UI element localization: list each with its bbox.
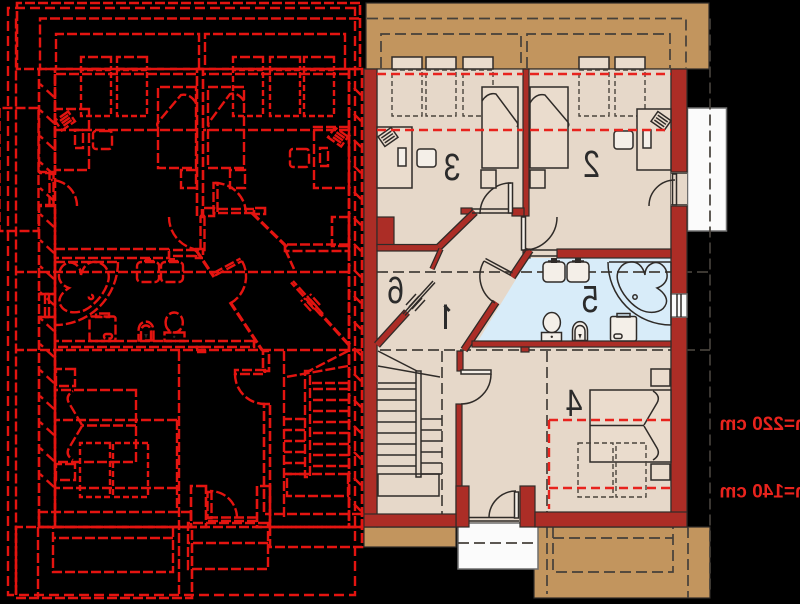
svg-text:2: 2: [583, 144, 600, 186]
svg-text:h=140 cm: h=140 cm: [719, 482, 800, 503]
svg-text:h=220 cm: h=220 cm: [719, 414, 800, 435]
svg-text:3: 3: [444, 147, 461, 189]
svg-text:5: 5: [582, 279, 599, 321]
svg-text:4: 4: [566, 383, 583, 425]
svg-text:6: 6: [387, 270, 404, 312]
